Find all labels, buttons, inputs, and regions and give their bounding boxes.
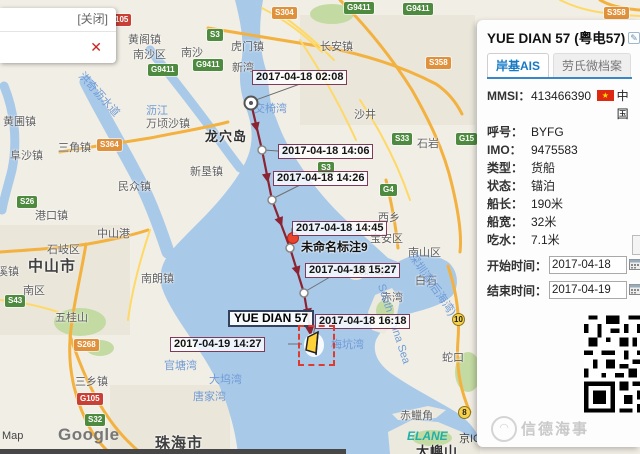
calendar-icon[interactable] [629, 258, 640, 273]
calendar-icon[interactable] [629, 283, 640, 298]
ship-field-row: 吃水：7.1米 [487, 231, 640, 249]
track-timestamp: 2017-04-18 02:08 [252, 70, 347, 85]
field-value: 货船 [531, 159, 555, 177]
start-time-input[interactable] [549, 256, 627, 274]
field-value: 9475583 [531, 141, 578, 159]
ship-info-panel: YUE DIAN 57(粤电57)✎ 岸基AIS 劳氏微档案 MMSI：4134… [477, 20, 640, 447]
custom-marker-label[interactable]: 未命名标注9 [301, 238, 368, 255]
info-popup: [关闭] ✕ [0, 8, 116, 63]
popup-x-icon[interactable]: ✕ [90, 39, 102, 56]
china-flag-icon: ★ [597, 90, 614, 101]
ship-field-row: 船宽：32米 [487, 213, 640, 231]
ship-fields: MMSI：413466390★中国呼号：BYFGIMO：9475583类型：货船… [487, 87, 640, 249]
end-time-row: 结束时间： [487, 281, 640, 299]
ship-field-row: 呼号：BYFG [487, 123, 640, 141]
vessel-name: YUE DIAN 57 [487, 31, 570, 46]
info-popup-header: [关闭] [0, 8, 116, 32]
ship-marker-icon[interactable] [302, 329, 328, 359]
xinde-logo-icon: ◠ [491, 416, 517, 442]
field-label: 吃水： [487, 231, 531, 249]
clipped-button[interactable] [632, 235, 640, 255]
ship-field-row: 船长：190米 [487, 195, 640, 213]
field-value: BYFG [531, 123, 564, 141]
ship-field-row: IMO：9475583 [487, 141, 640, 159]
field-value: 锚泊 [531, 177, 555, 195]
end-time-input[interactable] [549, 281, 627, 299]
track-timestamp: 2017-04-18 14:45 [292, 221, 387, 236]
qr-code [584, 314, 640, 414]
watermark-text: 信德海事 [521, 418, 589, 439]
flag-country: 中国 [617, 87, 640, 123]
tab-shore-ais[interactable]: 岸基AIS [487, 53, 549, 77]
track-timestamp: 2017-04-19 14:27 [170, 337, 265, 352]
field-label: MMSI： [487, 87, 531, 123]
panel-tabs: 岸基AIS 劳氏微档案 [487, 53, 632, 79]
panel-title: YUE DIAN 57(粤电57)✎ [477, 20, 640, 51]
elane-logo: ELANE [407, 429, 448, 443]
edit-icon[interactable]: ✎ [628, 32, 640, 44]
field-label: 状态： [487, 177, 531, 195]
track-timestamp: 2017-04-18 15:27 [305, 263, 400, 278]
field-label: 船长： [487, 195, 531, 213]
field-value: 190米 [531, 195, 563, 213]
field-label: 船宽： [487, 213, 531, 231]
field-value: 7.1米 [531, 231, 560, 249]
popup-close-button[interactable]: [关闭] [77, 8, 108, 31]
field-value: 32米 [531, 213, 556, 231]
field-label: 呼号： [487, 123, 531, 141]
bottom-strip [0, 449, 346, 454]
start-time-label: 开始时间： [487, 257, 549, 274]
ship-field-row: 类型：货船 [487, 159, 640, 177]
field-label: 类型： [487, 159, 531, 177]
end-time-label: 结束时间： [487, 282, 549, 299]
ship-field-row: MMSI：413466390★中国 [487, 87, 640, 123]
screenshot-root: 105S304G9411G9411S3S358S358G9411G9411S33… [0, 0, 640, 454]
field-value: 413466390 [531, 87, 591, 123]
map-attribution: Map [2, 430, 23, 442]
track-timestamp: 2017-04-18 14:06 [278, 144, 373, 159]
field-label: IMO： [487, 141, 531, 159]
track-timestamp: 2017-04-18 14:26 [273, 171, 368, 186]
tab-lloyds-archive[interactable]: 劳氏微档案 [553, 53, 631, 77]
ship-field-row: 状态：锚泊 [487, 177, 640, 195]
vessel-cn-name: (粤电57) [574, 31, 625, 46]
start-time-row: 开始时间： [487, 256, 640, 274]
google-logo[interactable]: Google [58, 425, 120, 445]
